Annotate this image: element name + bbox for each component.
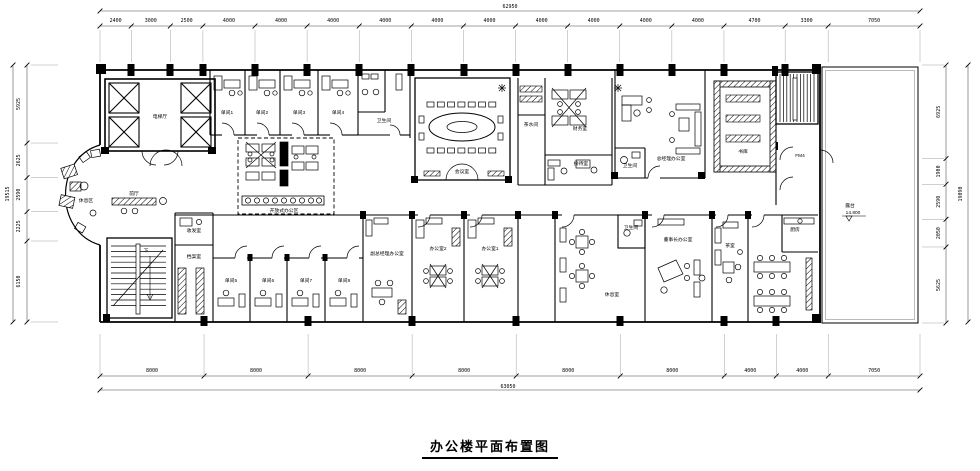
dim-total: 63050: [500, 384, 515, 390]
generated-furniture: [111, 74, 814, 314]
dim-value: 7050: [868, 368, 880, 374]
label-reception-room: 接待室: [574, 160, 589, 167]
dim-value: 5625: [936, 279, 942, 291]
dim-value: 4700: [749, 18, 761, 24]
dim-value: 5925: [16, 98, 22, 110]
label-library: 书库: [738, 148, 748, 155]
label-single-office-7: 单间7: [300, 277, 313, 284]
dim-value: 4000: [796, 368, 808, 374]
floor-plan-svg: 2400300025004000400040004000400040004000…: [0, 0, 980, 471]
label-mail-room: 收发室: [187, 227, 202, 234]
label-gm-washroom: 卫生间: [623, 162, 638, 169]
floor-plan-canvas: 2400300025004000400040004000400040004000…: [0, 0, 980, 471]
dim-value: 2500: [181, 18, 193, 24]
label-single-office-5: 单间5: [225, 277, 238, 284]
label-terrace: 露台: [845, 202, 855, 209]
dim-value: 4000: [640, 18, 652, 24]
dim-value: 8000: [250, 368, 262, 374]
dim-value: 7050: [868, 18, 880, 24]
dim-value: 2590: [936, 196, 942, 208]
label-deputy-gm-office: 副总经理办公室: [370, 250, 404, 257]
dim-value: 4000: [327, 18, 339, 24]
dim-value: 2225: [16, 220, 22, 232]
label-gm-office: 总经理办公室: [657, 155, 686, 162]
dim-value: 2590: [16, 189, 22, 201]
label-single-office-8: 单间8: [338, 277, 351, 284]
dim-value: 8000: [458, 368, 470, 374]
label-lounge-area: 休息区: [79, 197, 94, 204]
dim-value: 4000: [431, 18, 443, 24]
dim-value: 4000: [379, 18, 391, 24]
dim-value: 8000: [666, 368, 678, 374]
label-office-2: 办公室2: [429, 245, 446, 252]
label-tea-room: 茶室: [725, 242, 735, 249]
label-office-1: 办公室1: [481, 245, 498, 252]
dim-total: 19090: [958, 186, 964, 201]
label-rest-room: 休息室: [605, 291, 620, 298]
dim-value: 4000: [275, 18, 287, 24]
label-stairs-down: 下: [144, 248, 149, 254]
dim-value: 6150: [16, 275, 22, 287]
dim-total: 62950: [502, 4, 517, 10]
label-pantry: 茶水间: [524, 121, 539, 128]
label-open-office: 开放式办公区: [270, 207, 299, 214]
label-stair-door-tag: FM4: [795, 153, 805, 159]
label-finance-room: 财务室: [573, 125, 588, 132]
dim-total: 19515: [5, 186, 11, 201]
dim-value: 6925: [936, 106, 942, 118]
dim-value: 2625: [16, 154, 22, 166]
label-single-office-4: 单间4: [332, 109, 345, 116]
dim-value: 2400: [110, 18, 122, 24]
dim-value: 8000: [146, 368, 158, 374]
label-archive-room: 档案室: [187, 253, 202, 260]
dim-value: 1900: [936, 165, 942, 177]
label-conference-room: 会议室: [455, 168, 470, 175]
dim-value: 3300: [801, 18, 813, 24]
label-washroom-bottom: 卫生间: [624, 224, 639, 231]
label-elevator-hall: 电梯厅: [153, 113, 168, 120]
dim-value: 4000: [536, 18, 548, 24]
label-single-office-6: 单间6: [262, 277, 275, 284]
furniture: [59, 74, 866, 314]
dim-value: 3000: [145, 18, 157, 24]
dim-value: 4000: [692, 18, 704, 24]
label-chairman-office: 董事长办公室: [664, 236, 693, 243]
label-front-hall: 前厅: [129, 190, 139, 197]
dim-value: 8000: [562, 368, 574, 374]
label-single-office-1: 单间1: [221, 109, 234, 116]
dim-value: 4000: [744, 368, 756, 374]
dim-value: 2050: [936, 227, 942, 239]
interior-walls: [105, 70, 833, 322]
drawing-title: 办公楼平面布置图: [422, 436, 558, 459]
label-terrace-level: 14.800: [846, 210, 861, 216]
label-kitchen: 厨房: [790, 226, 800, 233]
label-single-office-2: 单间2: [256, 109, 269, 116]
dim-value: 4000: [483, 18, 495, 24]
dim-value: 4000: [223, 18, 235, 24]
label-washroom-top: 卫生间: [377, 117, 392, 124]
label-single-office-3: 单间3: [293, 109, 306, 116]
dim-value: 8000: [354, 368, 366, 374]
dim-value: 4000: [588, 18, 600, 24]
